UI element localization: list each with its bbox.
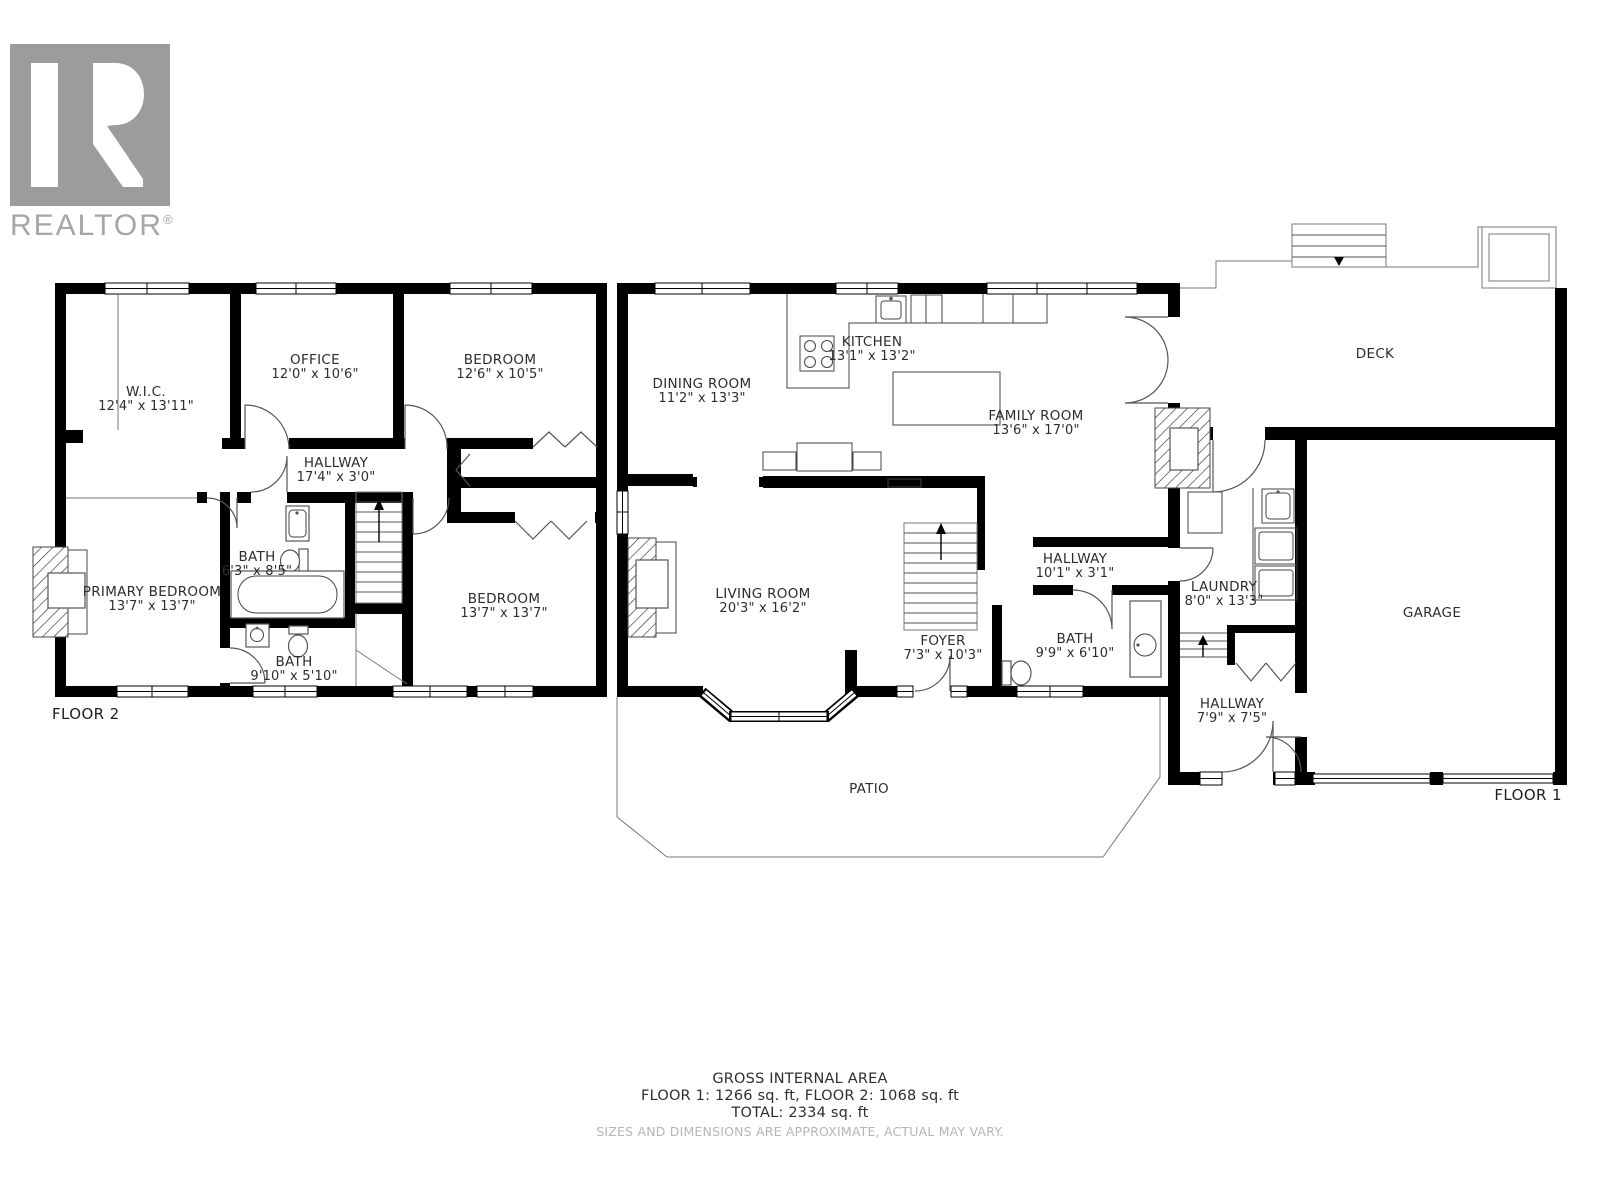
room-label-hallway-f2: HALLWAY [304, 455, 369, 471]
room-dims-office: 12'0" x 10'6" [271, 367, 358, 382]
floor1-plan: DINING ROOM 11'2" x 13'3" KITCHEN 13'1" … [617, 224, 1567, 857]
room-dims-laundry: 8'0" x 13'3" [1185, 594, 1264, 609]
room-dims-hallway-f2: 17'4" x 3'0" [297, 470, 376, 485]
room-label-kitchen: KITCHEN [842, 334, 903, 350]
room-dims-kitchen: 13'1" x 13'2" [828, 349, 915, 364]
room-dims-bath-floor1: 9'9" x 6'10" [1036, 646, 1115, 661]
room-label-patio: PATIO [849, 781, 889, 797]
floor1-label: FLOOR 1 [1494, 786, 1562, 804]
bay-window [702, 692, 856, 722]
floor1-walls [617, 283, 1567, 785]
room-dims-living: 20'3" x 16'2" [719, 601, 806, 616]
room-dims-dining: 11'2" x 13'3" [658, 391, 745, 406]
room-dims-bedroom-bottom: 13'7" x 13'7" [460, 606, 547, 621]
room-label-laundry: LAUNDRY [1191, 579, 1258, 595]
total-area-line: TOTAL: 2334 sq. ft [0, 1105, 1600, 1122]
room-label-primary: PRIMARY BEDROOM [83, 584, 221, 600]
room-dims-bath-bottom: 9'10" x 5'10" [250, 669, 337, 684]
room-label-bedroom-bottom: BEDROOM [468, 591, 541, 607]
room-dims-family: 13'6" x 17'0" [992, 423, 1079, 438]
patio-outline [617, 697, 1160, 857]
room-dims-foyer: 7'3" x 10'3" [904, 648, 983, 663]
room-dims-hallway-entry: 7'9" x 7'5" [1197, 711, 1267, 726]
room-dims-wic: 12'4" x 13'11" [98, 399, 194, 414]
room-dims-bedroom-top: 12'6" x 10'5" [456, 367, 543, 382]
floor2-windows [105, 283, 533, 697]
room-dims-primary: 13'7" x 13'7" [108, 599, 195, 614]
bath-bottom-fixtures [246, 624, 308, 657]
room-label-hallway-main: HALLWAY [1043, 551, 1108, 567]
room-label-bath-floor1: BATH [1056, 631, 1093, 647]
room-label-bath-bottom: BATH [275, 654, 312, 670]
room-label-foyer: FOYER [920, 633, 965, 649]
kitchen-island [893, 372, 1000, 425]
room-label-bedroom-top: BEDROOM [464, 352, 537, 368]
room-label-living: LIVING ROOM [715, 586, 810, 602]
room-label-family: FAMILY ROOM [988, 408, 1083, 424]
floorplan-page: REALTOR® [0, 0, 1600, 1200]
room-label-dining: DINING ROOM [653, 376, 752, 392]
area-summary: GROSS INTERNAL AREA FLOOR 1: 1266 sq. ft… [0, 1071, 1600, 1140]
deck-planter [1482, 227, 1556, 288]
floor2-plan: W.I.C. 12'4" x 13'11" OFFICE 12'0" x 10'… [33, 283, 607, 723]
floor2-label: FLOOR 2 [52, 705, 120, 723]
room-label-deck: DECK [1356, 346, 1395, 362]
living-fireplace [628, 538, 676, 637]
room-label-bath-top: BATH [238, 549, 275, 565]
room-dims-bath-top: 6'3" x 8'5" [222, 564, 292, 579]
disclaimer-line: SIZES AND DIMENSIONS ARE APPROXIMATE, AC… [0, 1124, 1600, 1140]
room-dims-hallway-main: 10'1" x 3'1" [1036, 566, 1115, 581]
floor-plan-drawing: W.I.C. 12'4" x 13'11" OFFICE 12'0" x 10'… [0, 0, 1600, 1200]
room-label-garage: GARAGE [1403, 605, 1461, 621]
floor2-stairs [356, 492, 407, 686]
primary-fireplace [33, 547, 87, 637]
floor1-stairs [904, 523, 977, 630]
floor2-walls [55, 283, 607, 697]
kitchen-fixtures [763, 294, 1047, 487]
room-label-office: OFFICE [290, 352, 340, 368]
room-label-hallway-entry: HALLWAY [1200, 696, 1265, 712]
room-label-wic: W.I.C. [126, 384, 166, 400]
entry-hall-stairs [1180, 633, 1296, 681]
gross-area-title: GROSS INTERNAL AREA [0, 1071, 1600, 1088]
floor-areas-line: FLOOR 1: 1266 sq. ft, FLOOR 2: 1068 sq. … [0, 1088, 1600, 1105]
deck-stairs [1292, 224, 1386, 267]
family-fireplace [1155, 408, 1210, 488]
